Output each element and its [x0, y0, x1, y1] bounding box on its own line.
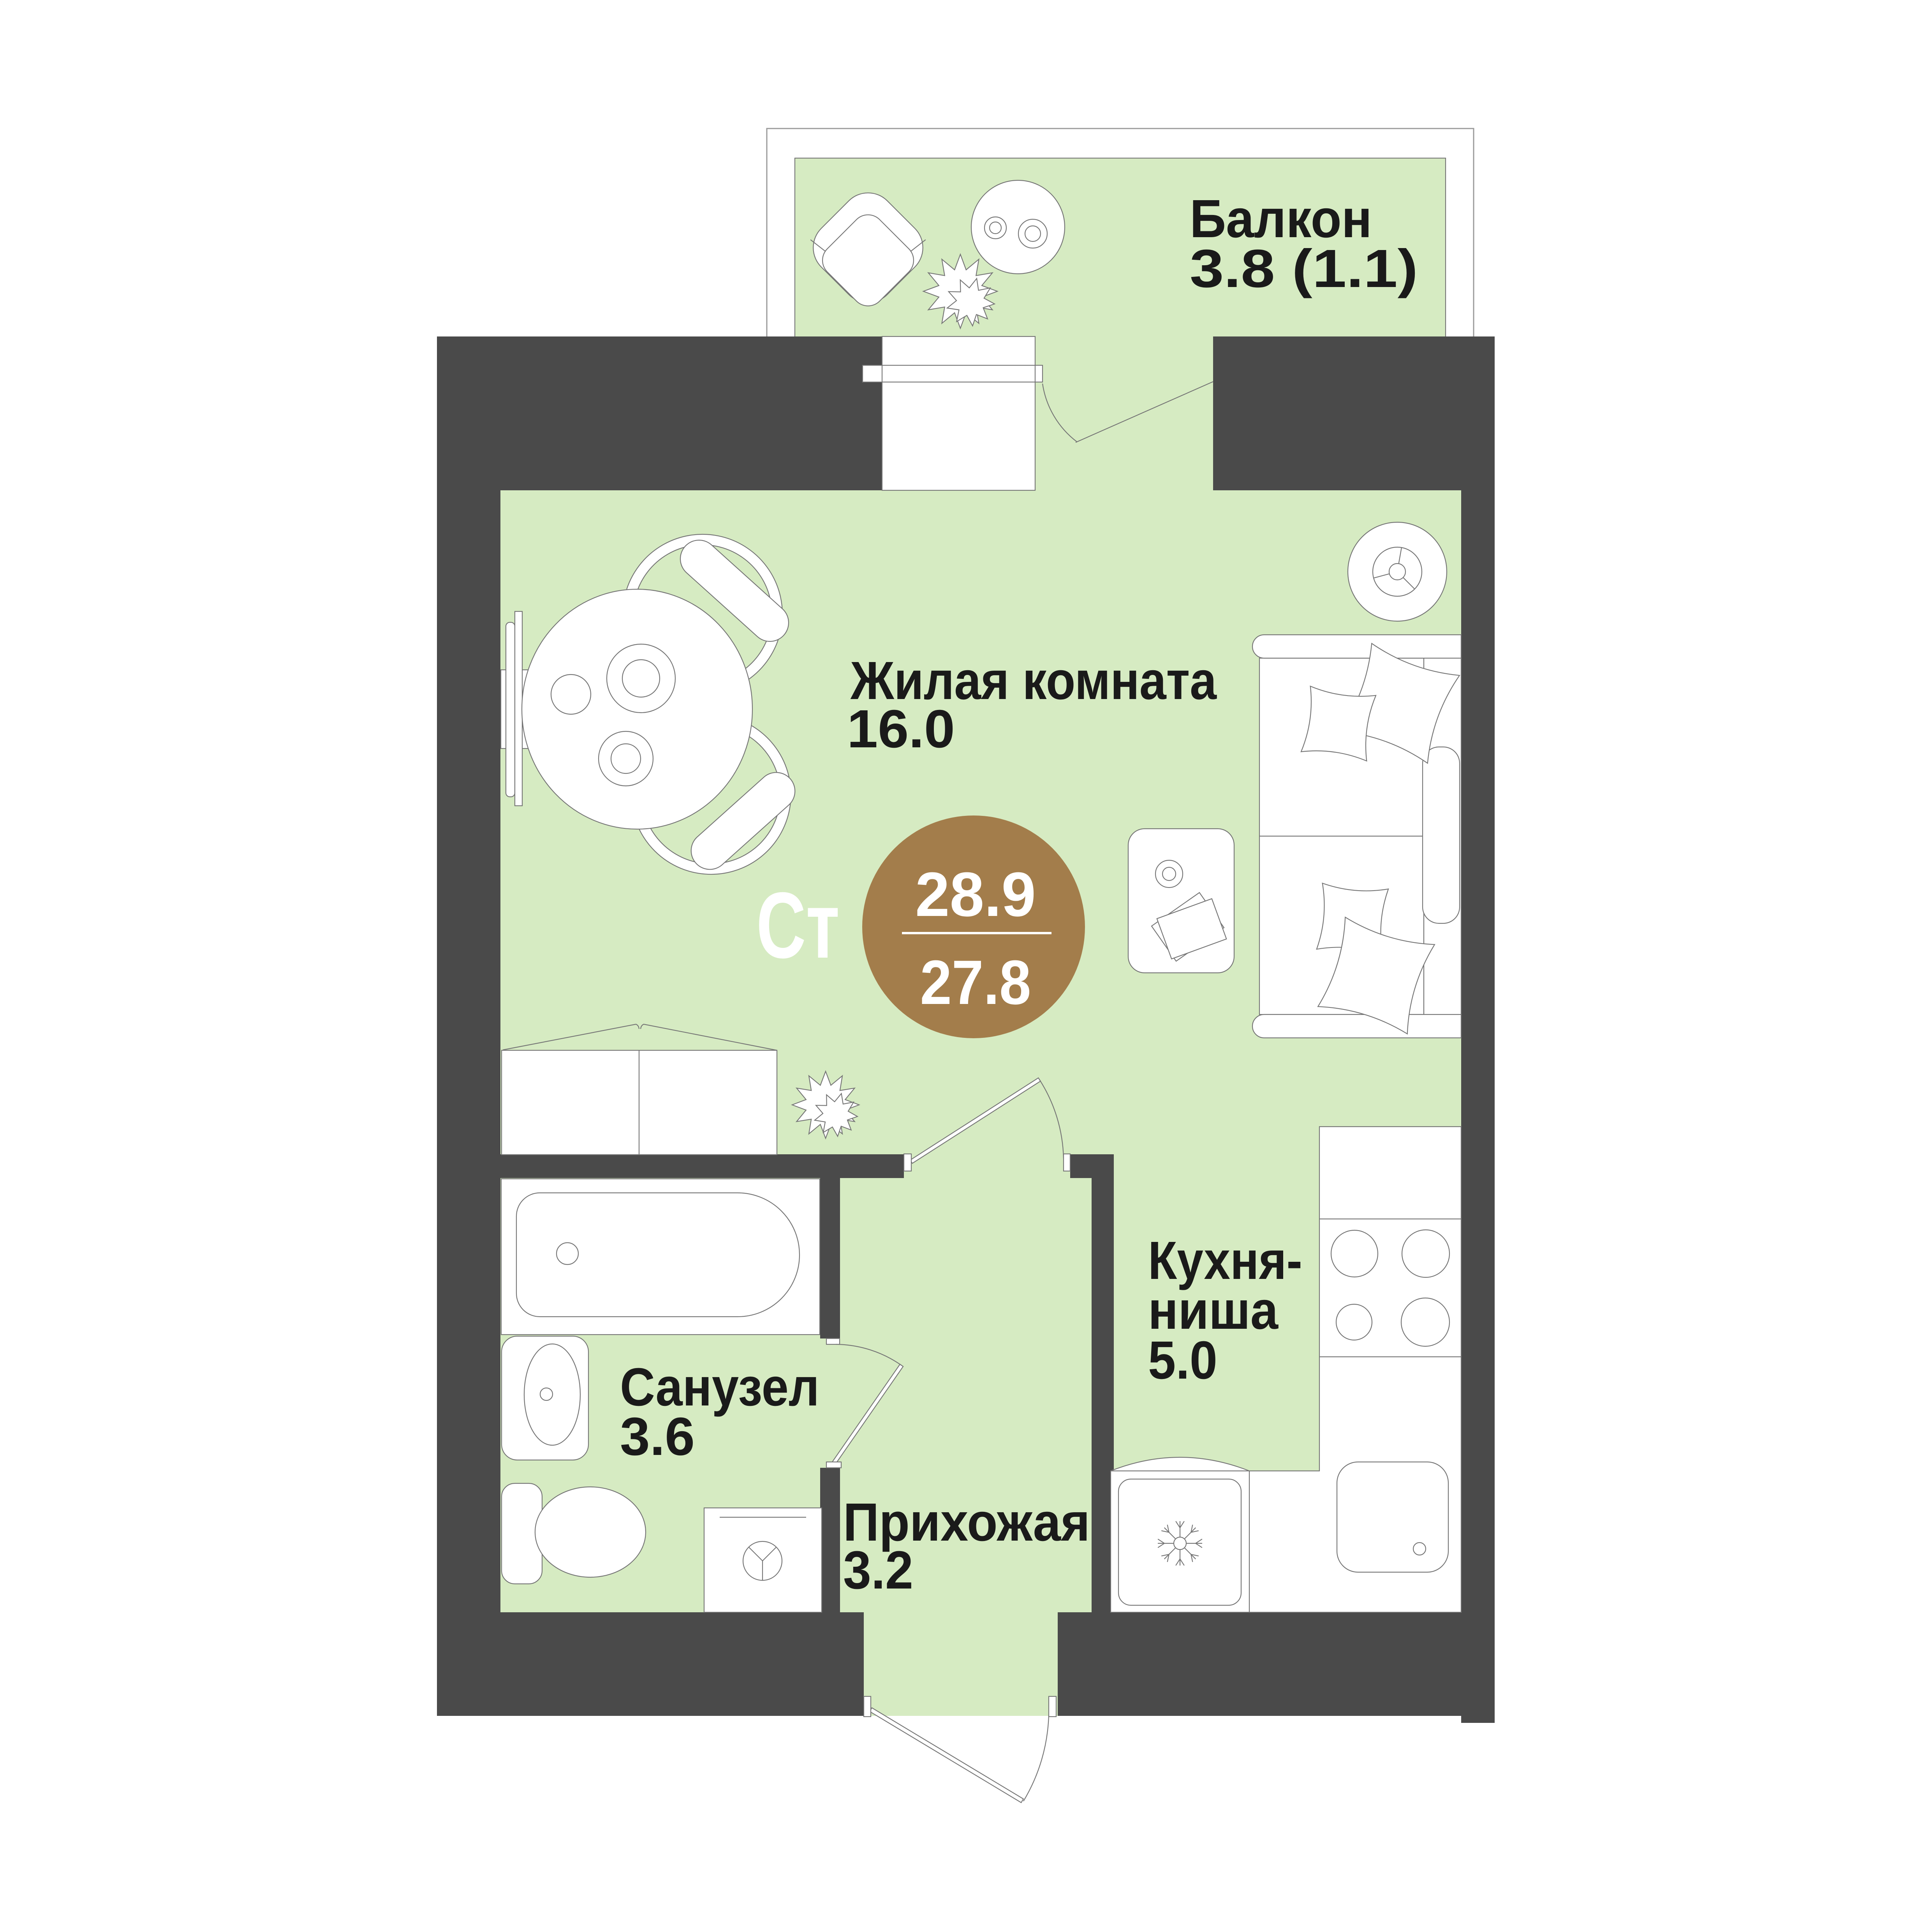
svg-text:16.0: 16.0	[847, 699, 955, 759]
svg-text:3.8 (1.1): 3.8 (1.1)	[1190, 239, 1418, 299]
svg-text:3.6: 3.6	[620, 1407, 695, 1467]
svg-text:3.2: 3.2	[843, 1540, 913, 1600]
svg-text:28.9: 28.9	[915, 859, 1036, 930]
svg-text:27.8: 27.8	[920, 948, 1031, 1018]
svg-text:5.0: 5.0	[1148, 1330, 1217, 1390]
svg-text:Ст: Ст	[756, 873, 840, 978]
